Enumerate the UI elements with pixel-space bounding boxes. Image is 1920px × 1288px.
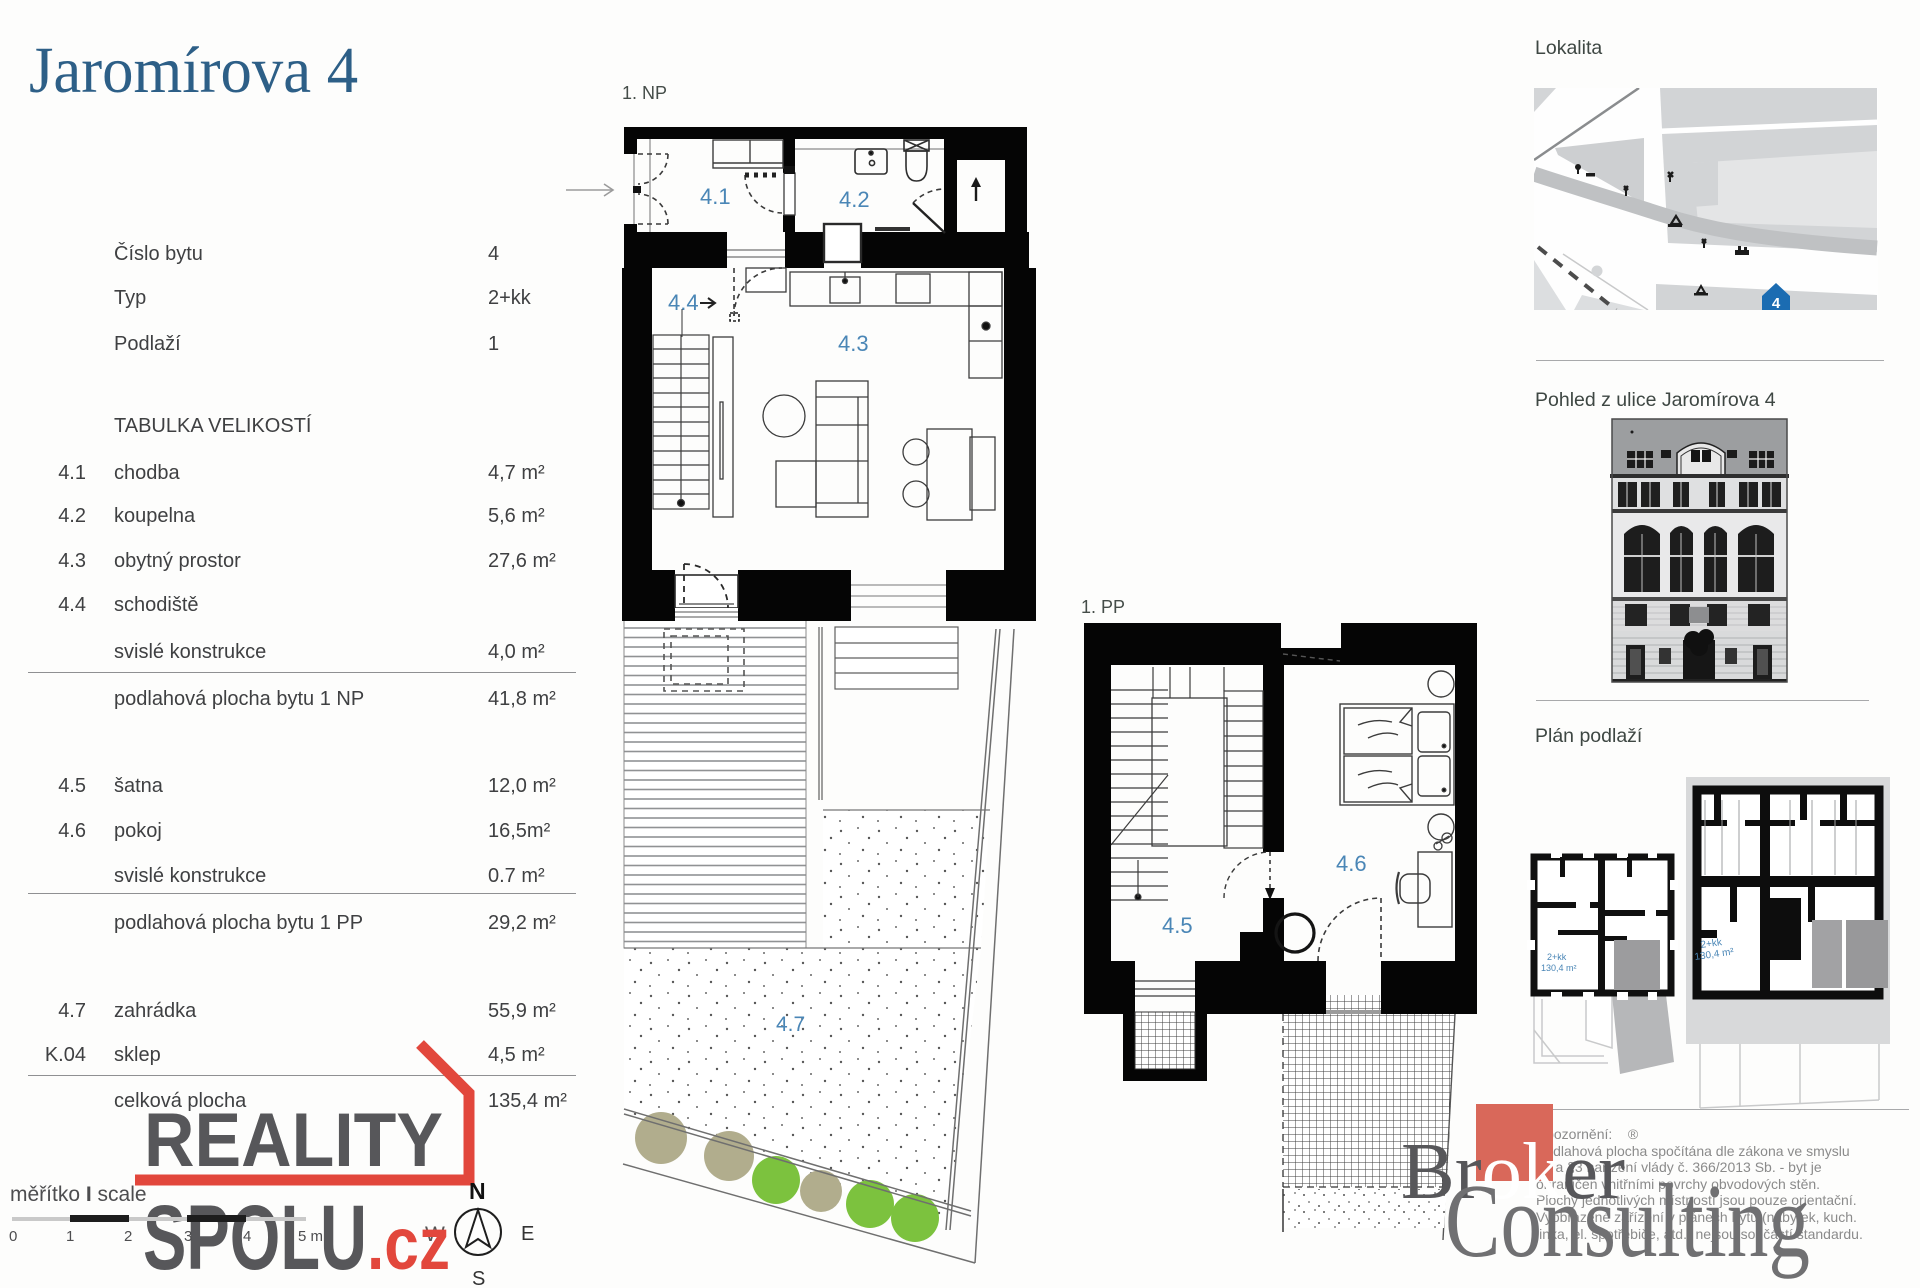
svg-text:S: S xyxy=(472,1268,485,1288)
svg-text:E: E xyxy=(521,1223,534,1245)
svg-text:4: 4 xyxy=(243,1228,251,1245)
svg-text:4.6: 4.6 xyxy=(1336,851,1367,876)
svg-text:4.5: 4.5 xyxy=(1162,913,1193,938)
svg-text:.cz: .cz xyxy=(367,1202,450,1285)
svg-text:2: 2 xyxy=(124,1228,132,1245)
svg-text:4.4: 4.4 xyxy=(668,290,699,315)
svg-text:0: 0 xyxy=(9,1228,17,1245)
svg-text:5 m: 5 m xyxy=(298,1228,323,1245)
svg-text:4.7: 4.7 xyxy=(776,1013,805,1036)
svg-text:REALITY: REALITY xyxy=(144,1098,443,1183)
svg-text:2+kk: 2+kk xyxy=(1547,952,1567,962)
svg-text:4.2: 4.2 xyxy=(839,187,870,212)
svg-text:SPOLU: SPOLU xyxy=(143,1187,367,1288)
svg-text:3: 3 xyxy=(184,1228,192,1245)
svg-text:4.3: 4.3 xyxy=(838,331,869,356)
svg-text:měřítko I scale: měřítko I scale xyxy=(10,1183,147,1206)
svg-text:130,4 m²: 130,4 m² xyxy=(1541,963,1577,973)
svg-text:4.1: 4.1 xyxy=(700,184,731,209)
svg-text:1. PP: 1. PP xyxy=(1081,597,1125,617)
svg-text:4: 4 xyxy=(1772,295,1781,310)
svg-text:N: N xyxy=(469,1178,486,1204)
svg-text:Consulting: Consulting xyxy=(1445,1162,1810,1279)
svg-text:1: 1 xyxy=(66,1228,74,1245)
svg-text:1. NP: 1. NP xyxy=(622,83,667,103)
